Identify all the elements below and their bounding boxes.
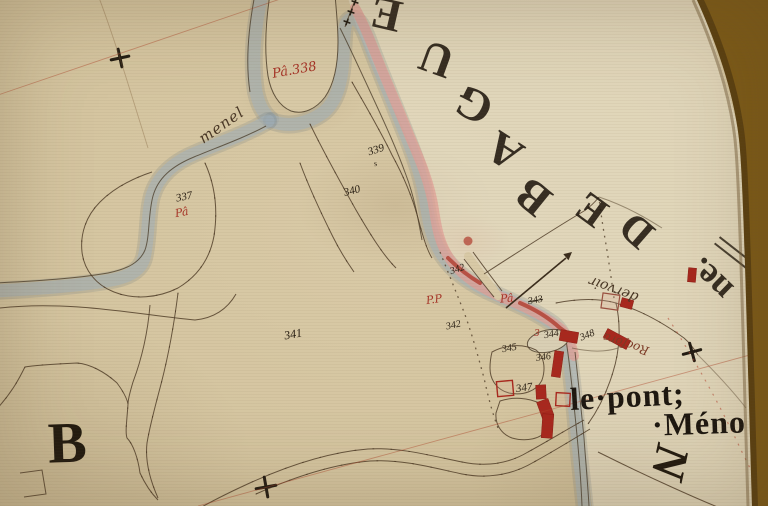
hamlet-name-line2: ·Méno (651, 405, 746, 440)
parcel-346: 346 (535, 352, 551, 364)
parcel-341: 341 (283, 327, 303, 342)
landuse-pa-arrow: Pâ (500, 292, 514, 304)
section-letter: B (47, 413, 88, 472)
landuse-3-mark: 3 (534, 330, 540, 339)
landuse-pp: P.P (425, 293, 442, 306)
landuse-pa-337: Pâ (174, 206, 189, 219)
cadastral-map-sheet: B le·pont; ·Méno N E U G A B E D ne. 337… (0, 0, 768, 506)
parcel-347: 347 (515, 382, 533, 395)
